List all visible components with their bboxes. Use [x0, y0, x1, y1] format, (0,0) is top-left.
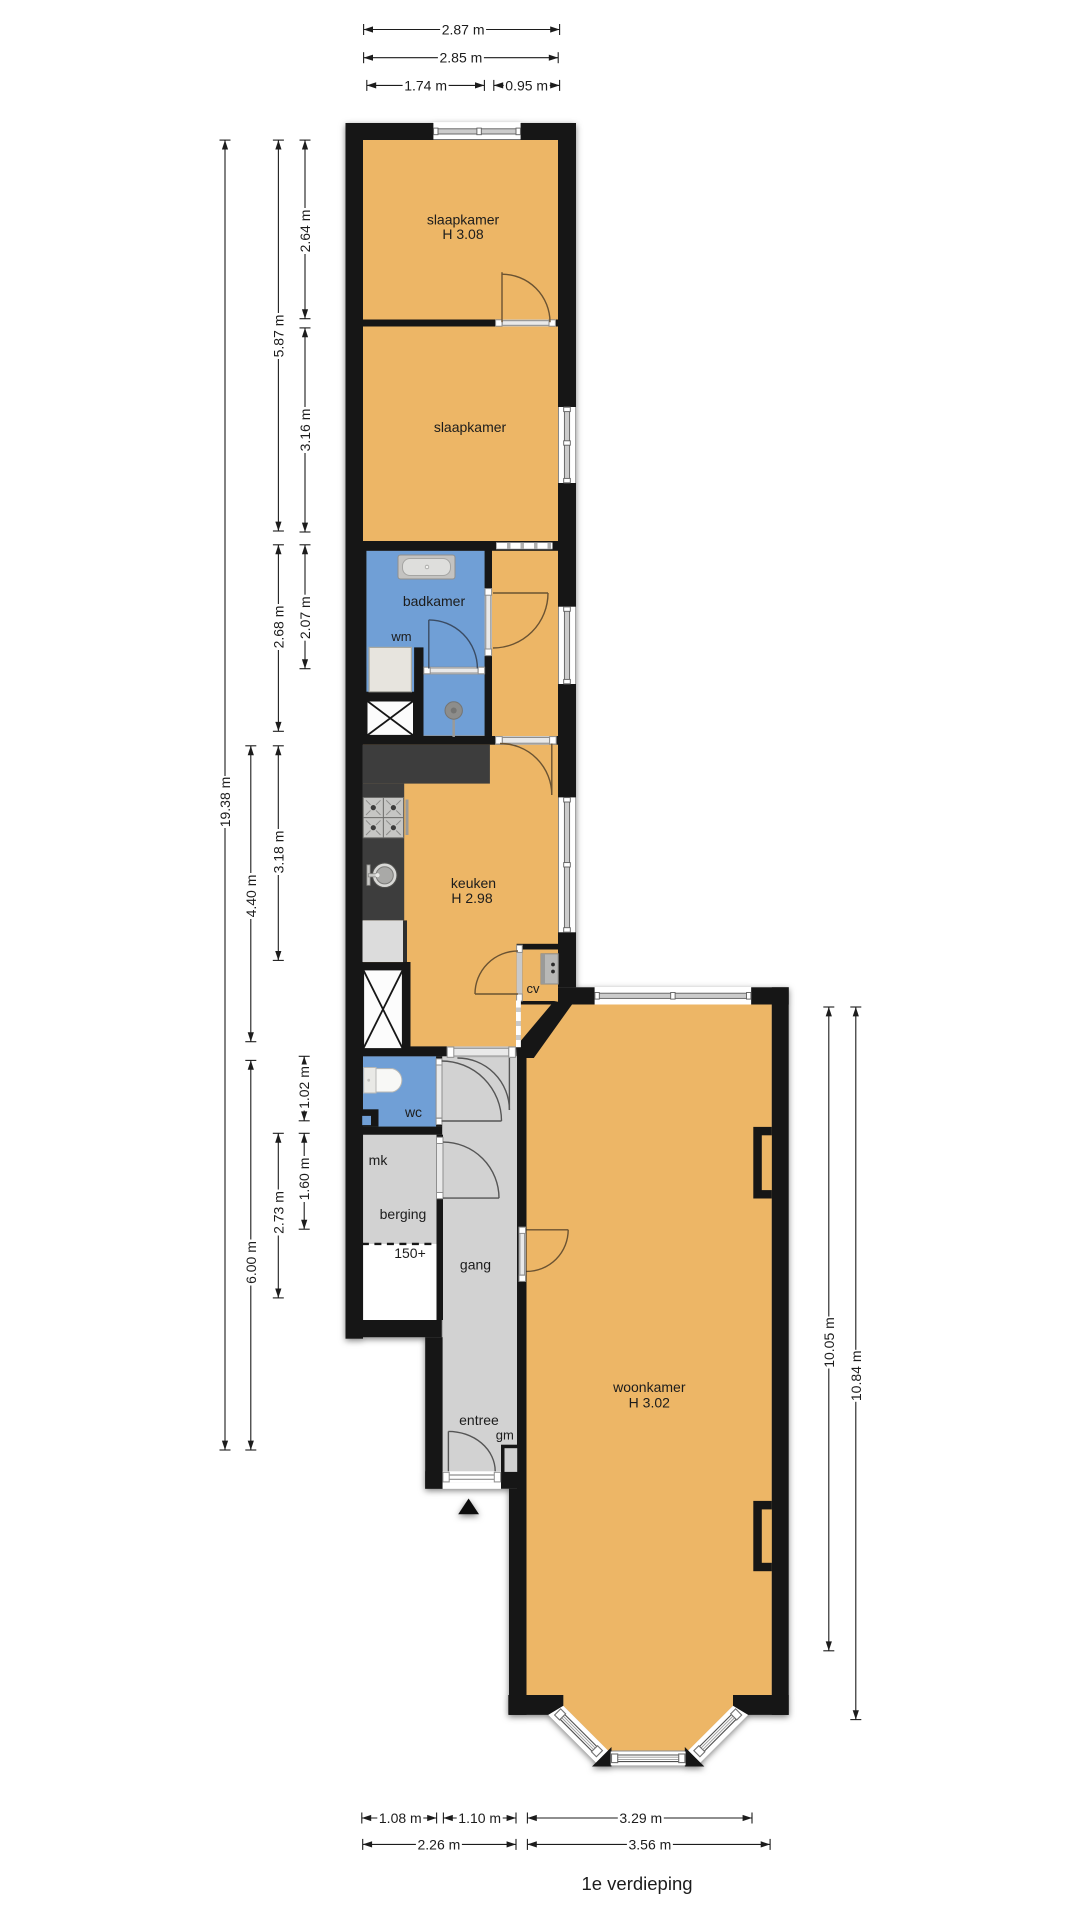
svg-text:1e verdieping: 1e verdieping — [581, 1873, 692, 1894]
svg-text:1.02 m: 1.02 m — [296, 1066, 312, 1109]
svg-text:0.95 m: 0.95 m — [505, 77, 548, 93]
svg-text:10.84 m: 10.84 m — [848, 1351, 864, 1402]
svg-text:1.08 m: 1.08 m — [379, 1810, 422, 1826]
svg-text:2.26 m: 2.26 m — [417, 1836, 460, 1852]
svg-text:wm: wm — [390, 629, 411, 644]
svg-text:1.60 m: 1.60 m — [296, 1158, 312, 1201]
svg-text:2.87 m: 2.87 m — [442, 22, 485, 38]
svg-text:wc: wc — [404, 1104, 422, 1120]
svg-text:4.40 m: 4.40 m — [243, 875, 259, 918]
svg-text:mk: mk — [369, 1152, 389, 1168]
svg-text:gm: gm — [496, 1428, 514, 1443]
svg-text:2.64 m: 2.64 m — [297, 210, 313, 253]
svg-text:gang: gang — [460, 1257, 491, 1273]
svg-text:6.00 m: 6.00 m — [243, 1241, 259, 1284]
svg-text:woonkamer: woonkamer — [612, 1379, 686, 1395]
svg-text:1.10 m: 1.10 m — [458, 1810, 501, 1826]
svg-text:H 3.08: H 3.08 — [442, 226, 483, 242]
svg-text:slaapkamer: slaapkamer — [434, 419, 507, 435]
svg-text:entree: entree — [459, 1412, 499, 1428]
svg-text:2.07 m: 2.07 m — [297, 596, 313, 639]
svg-text:badkamer: badkamer — [403, 593, 466, 609]
svg-text:keuken: keuken — [451, 875, 496, 891]
svg-text:10.05 m: 10.05 m — [821, 1317, 837, 1368]
svg-text:3.16 m: 3.16 m — [297, 409, 313, 452]
svg-text:H 3.02: H 3.02 — [629, 1395, 670, 1411]
svg-text:3.29 m: 3.29 m — [619, 1810, 662, 1826]
svg-text:3.56 m: 3.56 m — [628, 1836, 671, 1852]
svg-text:berging: berging — [380, 1206, 427, 1222]
svg-text:150+: 150+ — [394, 1245, 426, 1261]
svg-text:2.85 m: 2.85 m — [439, 50, 482, 66]
svg-text:cv: cv — [527, 981, 541, 996]
svg-text:3.18 m: 3.18 m — [270, 831, 286, 874]
svg-text:2.68 m: 2.68 m — [270, 606, 286, 649]
svg-text:H 2.98: H 2.98 — [451, 890, 492, 906]
svg-text:1.74 m: 1.74 m — [404, 77, 447, 93]
svg-text:19.38 m: 19.38 m — [217, 777, 233, 828]
svg-text:5.87 m: 5.87 m — [270, 315, 286, 358]
svg-text:2.73 m: 2.73 m — [270, 1191, 286, 1234]
